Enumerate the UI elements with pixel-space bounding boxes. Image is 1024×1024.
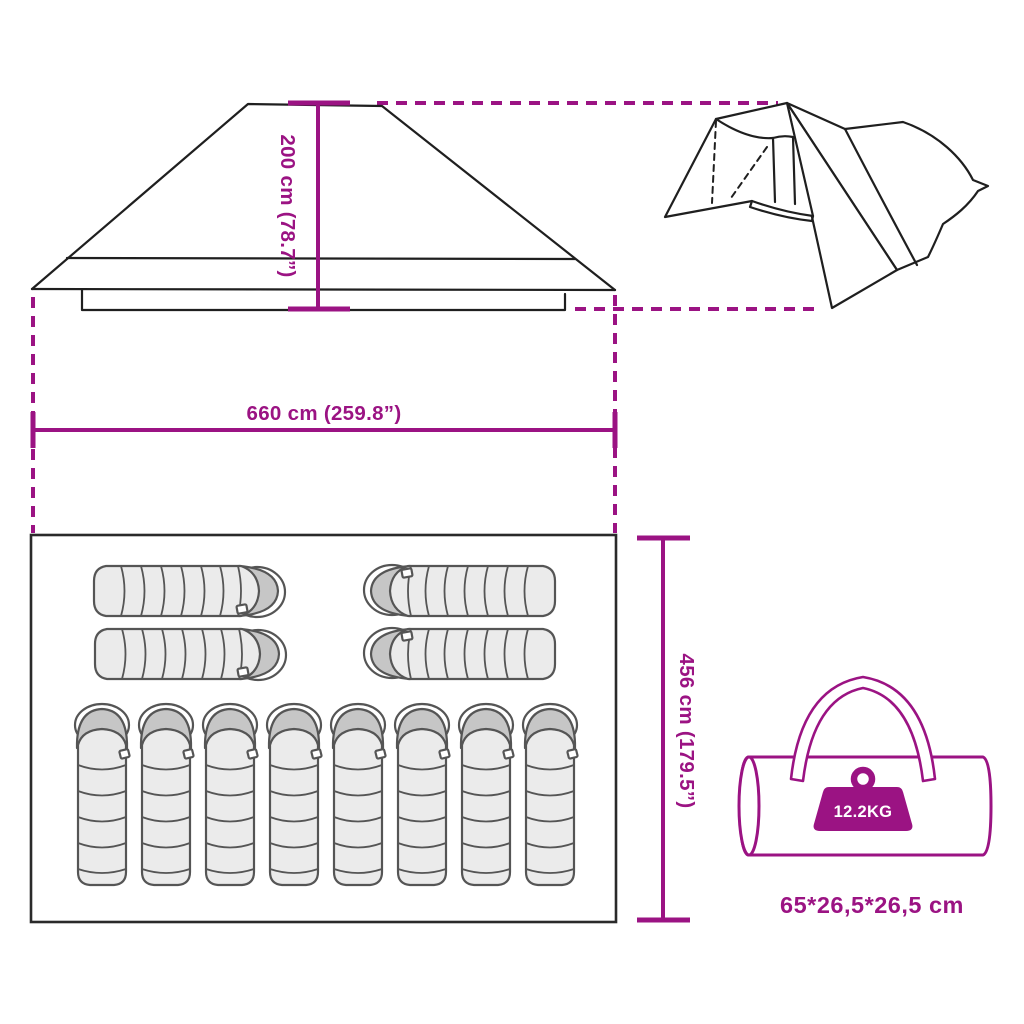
depth-dimension-label: 456 cm (179.5”) (675, 654, 698, 809)
sleeping-bag-vertical (267, 704, 322, 885)
roof-outline (32, 104, 615, 290)
width-dimension: 660 cm (259.8”) (33, 402, 615, 448)
height-dimension-label: 200 cm (78.7”) (276, 134, 299, 277)
sleeping-bag-vertical (459, 704, 514, 885)
product-dimension-diagram: { "colors": { "accent": "#9b1383", "ink"… (0, 0, 1024, 1024)
tent-roof-icon (32, 104, 615, 310)
depth-dimension: 456 cm (179.5”) (637, 538, 698, 920)
floorplan (31, 535, 616, 922)
sleeping-bag-vertical (331, 704, 386, 885)
carry-bag-end-rim (739, 757, 759, 855)
sleeping-bag-horizontal (95, 629, 286, 680)
roof-eave-line (67, 258, 575, 259)
carry-bag-icon: 12.2KG 65*26,5*26,5 cm (739, 677, 991, 918)
sleeping-bag-vertical (395, 704, 450, 885)
tent-3d-icon (665, 103, 988, 308)
sleeping-bag-horizontal (364, 628, 555, 679)
sleeping-bag-vertical (523, 704, 578, 885)
weight-label: 12.2KG (834, 803, 893, 821)
carry-bag-size-label: 65*26,5*26,5 cm (780, 892, 964, 918)
sleeping-bag-vertical (203, 704, 258, 885)
roof-bottom-line (32, 289, 615, 290)
sleeping-bag-horizontal (94, 566, 285, 617)
diagram-canvas: 200 cm (78.7”) 660 cm (259.8”) 456 cm (1… (0, 0, 1024, 1024)
sleeping-bag-vertical (139, 704, 194, 885)
width-dimension-label: 660 cm (259.8”) (247, 402, 402, 425)
sleeping-bag-horizontal (364, 565, 555, 616)
sleeping-bag-vertical (75, 704, 130, 885)
height-dimension: 200 cm (78.7”) (276, 103, 350, 309)
tent3d-left-wing (665, 103, 813, 217)
